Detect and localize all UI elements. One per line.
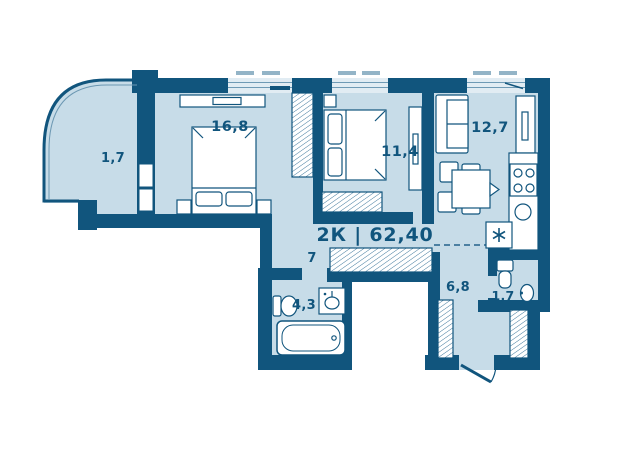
wardrobe-icon	[292, 93, 313, 177]
wardrobe-icon	[322, 192, 382, 212]
wall	[538, 85, 550, 312]
wall	[78, 200, 97, 230]
wall	[258, 268, 272, 370]
fridge-icon	[516, 96, 535, 153]
bathtub-icon	[277, 321, 345, 355]
wall	[327, 272, 434, 282]
wall	[95, 214, 272, 228]
wall	[388, 78, 467, 93]
label-bedroom-1-area: 16,8	[211, 119, 249, 135]
toilet-icon	[497, 260, 513, 288]
balcony-door-icon	[139, 164, 153, 211]
wall	[272, 268, 302, 280]
window-icon	[332, 71, 388, 93]
label-bedroom-2-area: 11,4	[381, 144, 419, 160]
plan-title: 2К | 62,40	[316, 224, 433, 246]
nightstand-icon	[177, 200, 191, 214]
nightstand-icon	[257, 200, 271, 214]
sofa-icon	[436, 95, 468, 153]
wall	[422, 93, 434, 224]
tv-console-icon	[180, 95, 265, 107]
floor-plan-svg: 1,7 16,8 11,4 12,7 7 4,3 6,8 1,7 2К | 62…	[0, 0, 620, 460]
windows	[228, 71, 525, 93]
wardrobe-icon	[510, 310, 528, 358]
label-bathroom-area: 4,3	[292, 298, 316, 313]
label-balcony-area: 1,7	[101, 151, 125, 166]
wall	[488, 260, 497, 276]
wardrobe-icon	[438, 300, 453, 358]
stove-icon	[510, 164, 537, 196]
window-icon	[228, 71, 292, 93]
wardrobe-icon	[330, 248, 432, 272]
label-corridor-area: 6,8	[446, 280, 470, 295]
bed-icon	[324, 110, 386, 180]
floor-plan: 1,7 16,8 11,4 12,7 7 4,3 6,8 1,7 2К | 62…	[0, 0, 620, 460]
nightstand-icon	[324, 95, 336, 107]
wall	[313, 212, 413, 224]
washbasin-icon	[520, 285, 534, 302]
wall	[258, 355, 352, 370]
window-icon	[467, 71, 525, 93]
wall	[292, 78, 332, 93]
label-wc-area: 1,7	[491, 288, 514, 303]
washing-machine-marker	[486, 222, 512, 248]
washbasin-icon	[319, 288, 345, 314]
bed-icon	[192, 127, 256, 214]
label-hallway-area: 7	[307, 251, 316, 266]
label-kitchen-area: 12,7	[471, 120, 509, 136]
dining-table-icon	[452, 170, 490, 208]
